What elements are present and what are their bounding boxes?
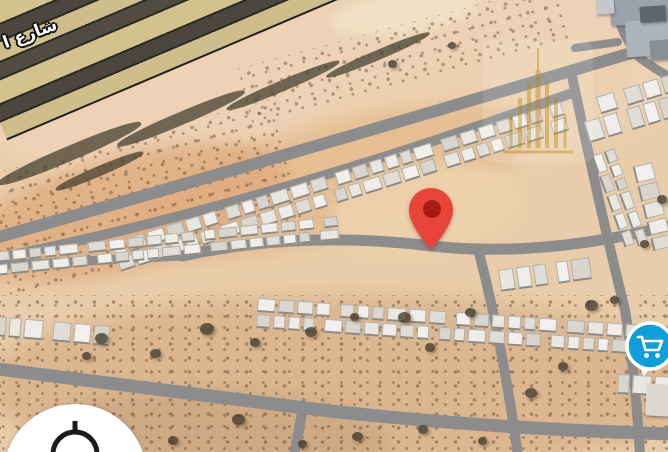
villa-building — [44, 245, 57, 257]
villa-building — [587, 321, 604, 336]
villa-building — [602, 112, 623, 137]
villa-building — [408, 309, 426, 324]
tree — [448, 42, 456, 49]
villa-building — [384, 153, 400, 170]
villa-building — [0, 250, 10, 262]
location-pin-icon[interactable] — [408, 187, 454, 251]
store-marker[interactable] — [624, 320, 668, 388]
villa-building — [526, 333, 542, 348]
villa-building — [646, 217, 668, 235]
villa-building — [315, 302, 331, 317]
villa-building — [439, 327, 452, 342]
villa-building — [416, 325, 430, 340]
villa-building — [52, 321, 72, 342]
villa-building — [128, 236, 145, 249]
villa-building — [147, 248, 160, 260]
villa-building — [567, 320, 585, 335]
villa-building — [567, 336, 581, 351]
villa-building — [474, 313, 490, 328]
villa-building — [260, 222, 278, 235]
villa-building — [400, 324, 415, 339]
villa-building — [164, 233, 179, 245]
tree — [610, 296, 619, 304]
villa-building — [12, 249, 27, 261]
tree — [388, 60, 397, 68]
villa-building — [225, 203, 242, 220]
villa-building — [273, 315, 287, 330]
villa-building — [59, 243, 79, 256]
building-logo-icon — [483, 40, 593, 163]
villa-building — [146, 234, 162, 246]
villa-building — [382, 323, 398, 338]
villa-building — [0, 264, 8, 276]
villa-building — [468, 329, 486, 344]
tree — [398, 312, 411, 323]
villa-building — [210, 241, 228, 254]
villa-building — [72, 255, 89, 268]
villa-building — [230, 239, 247, 252]
villa-building — [533, 263, 549, 287]
locate-icon — [53, 421, 97, 452]
villa-building — [488, 330, 505, 345]
tree — [168, 436, 178, 445]
tree — [558, 362, 568, 371]
villa-building — [288, 316, 301, 331]
tree — [640, 240, 649, 248]
villa-building — [23, 319, 44, 341]
villa-building — [507, 332, 523, 347]
tree — [657, 195, 667, 204]
villa-building — [181, 231, 195, 243]
villa-building — [570, 257, 592, 281]
villa-building — [97, 253, 113, 265]
villa-building — [73, 323, 92, 344]
tree — [350, 313, 359, 321]
villa-building — [115, 251, 130, 263]
villa-building — [633, 162, 657, 183]
villa-building — [498, 268, 516, 292]
villa-building — [183, 243, 202, 256]
compound-building — [649, 39, 668, 60]
villa-building — [372, 306, 385, 321]
tree — [200, 323, 214, 335]
villa-building — [87, 240, 106, 253]
villa-building — [597, 338, 609, 353]
villa-building — [606, 322, 623, 337]
tree — [418, 425, 428, 434]
tree — [585, 300, 598, 311]
villa-building — [257, 298, 275, 313]
villa-building — [298, 232, 311, 244]
villa-building — [297, 301, 314, 316]
villa-building — [323, 216, 338, 228]
watermark-logo — [483, 40, 593, 163]
villa-building — [516, 266, 533, 290]
villa-building — [454, 328, 466, 343]
villa-building — [399, 149, 414, 166]
villa-building — [28, 247, 42, 259]
villa-building — [538, 318, 557, 333]
villa-building — [255, 194, 270, 211]
tree — [425, 343, 435, 352]
map-canvas[interactable]: شارع ا — [0, 0, 668, 452]
villa-building — [583, 337, 596, 352]
tree — [232, 414, 245, 425]
villa-building — [324, 319, 342, 334]
tree — [250, 338, 260, 347]
villa-building — [550, 335, 565, 350]
villa-building — [203, 229, 216, 241]
villa-building — [368, 158, 385, 175]
villa-building — [283, 233, 297, 245]
compound-building — [645, 383, 668, 416]
tree — [298, 440, 307, 448]
villa-building — [10, 261, 30, 274]
villa-building — [508, 316, 522, 331]
villa-building — [108, 238, 126, 251]
villa-building — [523, 317, 536, 332]
tree — [478, 437, 487, 445]
villa-building — [266, 235, 281, 247]
villa-building — [555, 260, 570, 283]
villa-building — [299, 218, 315, 230]
villa-building — [241, 199, 257, 216]
compound-building — [596, 0, 615, 15]
tree — [82, 352, 91, 360]
villa-building — [491, 314, 506, 329]
villa-building — [280, 220, 297, 233]
villa-building — [650, 234, 668, 251]
villa-building — [277, 299, 294, 314]
villa-building — [429, 310, 446, 325]
villa-building — [240, 224, 259, 237]
villa-building — [218, 226, 238, 239]
compound-building — [639, 5, 666, 23]
villa-building — [131, 249, 145, 261]
villa-building — [31, 259, 50, 272]
tree — [95, 333, 108, 344]
villa-building — [249, 237, 265, 249]
villa-building — [320, 229, 340, 242]
villa-building — [344, 320, 361, 335]
villa-building — [162, 246, 182, 259]
villa-building — [256, 314, 271, 329]
locate-button[interactable] — [3, 404, 147, 452]
villa-building — [8, 317, 22, 338]
villa-building — [364, 321, 380, 336]
villa-building — [52, 257, 70, 270]
villa-building — [0, 316, 7, 337]
